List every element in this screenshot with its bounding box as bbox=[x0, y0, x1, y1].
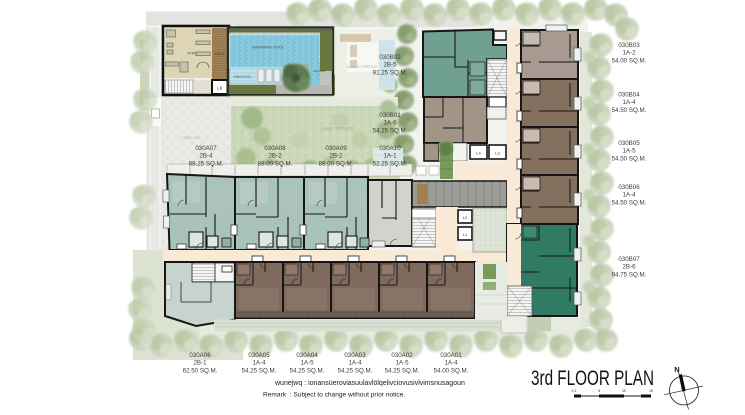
svg-text:1A-5: 1A-5 bbox=[300, 360, 314, 367]
svg-text:L3: L3 bbox=[495, 151, 500, 156]
svg-text:030A05: 030A05 bbox=[248, 352, 270, 359]
svg-text:54.25 SQ.M.: 54.25 SQ.M. bbox=[373, 128, 408, 135]
svg-text:54.25 SQ.M.: 54.25 SQ.M. bbox=[338, 368, 373, 375]
svg-text:L2: L2 bbox=[463, 215, 468, 220]
svg-text:2B-6: 2B-6 bbox=[622, 264, 636, 271]
svg-text:1A-5: 1A-5 bbox=[622, 148, 636, 155]
svg-text:KIDS POOL: KIDS POOL bbox=[234, 75, 252, 79]
svg-text:JACUZZI: JACUZZI bbox=[313, 69, 325, 73]
svg-text:3rd FLOOR PLAN: 3rd FLOOR PLAN bbox=[531, 367, 654, 390]
svg-text:030B07: 030B07 bbox=[618, 256, 640, 263]
svg-text:LAWN TERRACE: LAWN TERRACE bbox=[320, 126, 353, 131]
svg-text:1A-2: 1A-2 bbox=[622, 50, 636, 57]
svg-text:030A06: 030A06 bbox=[189, 352, 211, 359]
svg-text:54.00 SQ.M.: 54.00 SQ.M. bbox=[434, 368, 469, 375]
svg-text:030A09: 030A09 bbox=[325, 145, 347, 152]
svg-text:1A-1: 1A-1 bbox=[383, 153, 397, 160]
svg-text:62.50 SQ.M.: 62.50 SQ.M. bbox=[183, 368, 218, 375]
svg-text:SWIMMING POOL: SWIMMING POOL bbox=[252, 46, 284, 50]
svg-text:54.50 SQ.M.: 54.50 SQ.M. bbox=[612, 107, 647, 114]
svg-text:52.25 SQ.M.: 52.25 SQ.M. bbox=[373, 161, 408, 168]
svg-text:0 1: 0 1 bbox=[572, 389, 577, 393]
svg-text:1A-4: 1A-4 bbox=[622, 192, 636, 199]
svg-text:2B-4: 2B-4 bbox=[199, 153, 213, 160]
svg-text:54.25 SQ.M.: 54.25 SQ.M. bbox=[242, 368, 277, 375]
svg-text:88.25 SQ.M.: 88.25 SQ.M. bbox=[189, 161, 224, 168]
svg-text:1A-4: 1A-4 bbox=[444, 360, 458, 367]
svg-text:030A10: 030A10 bbox=[379, 145, 401, 152]
svg-text:DECK: DECK bbox=[215, 52, 226, 56]
svg-text:030A01: 030A01 bbox=[440, 352, 462, 359]
svg-text:DROP-OFF: DROP-OFF bbox=[181, 136, 202, 140]
svg-text:10: 10 bbox=[622, 389, 626, 393]
svg-text:54.25 SQ.M.: 54.25 SQ.M. bbox=[290, 368, 325, 375]
svg-text:1A-4: 1A-4 bbox=[348, 360, 362, 367]
svg-text:030A02: 030A02 bbox=[391, 352, 413, 359]
svg-text:Remark : Subject to change wi: Remark : Subject to change without prior… bbox=[263, 392, 405, 399]
svg-text:030B05: 030B05 bbox=[618, 140, 640, 147]
svg-text:SUNKEN TERRACE: SUNKEN TERRACE bbox=[346, 65, 378, 69]
svg-text:5: 5 bbox=[598, 389, 600, 393]
svg-text:2B-1: 2B-1 bbox=[193, 360, 207, 367]
svg-text:2B-2: 2B-2 bbox=[329, 153, 343, 160]
svg-text:54.50 SQ.M.: 54.50 SQ.M. bbox=[612, 156, 647, 163]
svg-text:wunejwq : ionansüeroviasuulavl: wunejwq : ionansüeroviasuulavlölqelivcio… bbox=[274, 380, 465, 387]
svg-text:030A03: 030A03 bbox=[344, 352, 366, 359]
svg-text:030A08: 030A08 bbox=[264, 145, 286, 152]
svg-text:030B02: 030B02 bbox=[379, 54, 401, 61]
svg-text:030A04: 030A04 bbox=[296, 352, 318, 359]
svg-text:54.00 SQ.M.: 54.00 SQ.M. bbox=[612, 58, 647, 65]
svg-text:L6: L6 bbox=[217, 86, 223, 91]
svg-text:94.75 SQ.M.: 94.75 SQ.M. bbox=[612, 272, 647, 279]
svg-text:030B01: 030B01 bbox=[379, 112, 401, 119]
svg-text:1A-6: 1A-6 bbox=[383, 120, 397, 127]
svg-text:1A-4: 1A-4 bbox=[622, 99, 636, 106]
svg-text:1A-5: 1A-5 bbox=[395, 360, 409, 367]
svg-text:L1: L1 bbox=[463, 232, 468, 237]
svg-text:54.25 SQ.M.: 54.25 SQ.M. bbox=[385, 368, 420, 375]
svg-text:91.25 SQ.M.: 91.25 SQ.M. bbox=[373, 70, 408, 77]
svg-text:88.00 SQ.M.: 88.00 SQ.M. bbox=[258, 161, 293, 168]
svg-text:88.00 SQ.M.: 88.00 SQ.M. bbox=[319, 161, 354, 168]
svg-text:030B06: 030B06 bbox=[618, 184, 640, 191]
svg-text:030A07: 030A07 bbox=[195, 145, 217, 152]
svg-text:030B04: 030B04 bbox=[618, 92, 640, 99]
svg-text:15: 15 bbox=[649, 389, 653, 393]
svg-text:2B-2: 2B-2 bbox=[268, 153, 282, 160]
svg-text:L4: L4 bbox=[476, 151, 481, 156]
svg-text:N: N bbox=[674, 365, 679, 374]
svg-text:1A-4: 1A-4 bbox=[252, 360, 266, 367]
svg-text:54.50 SQ.M.: 54.50 SQ.M. bbox=[612, 200, 647, 207]
svg-text:2B-5: 2B-5 bbox=[383, 62, 397, 69]
svg-text:030B03: 030B03 bbox=[618, 42, 640, 49]
